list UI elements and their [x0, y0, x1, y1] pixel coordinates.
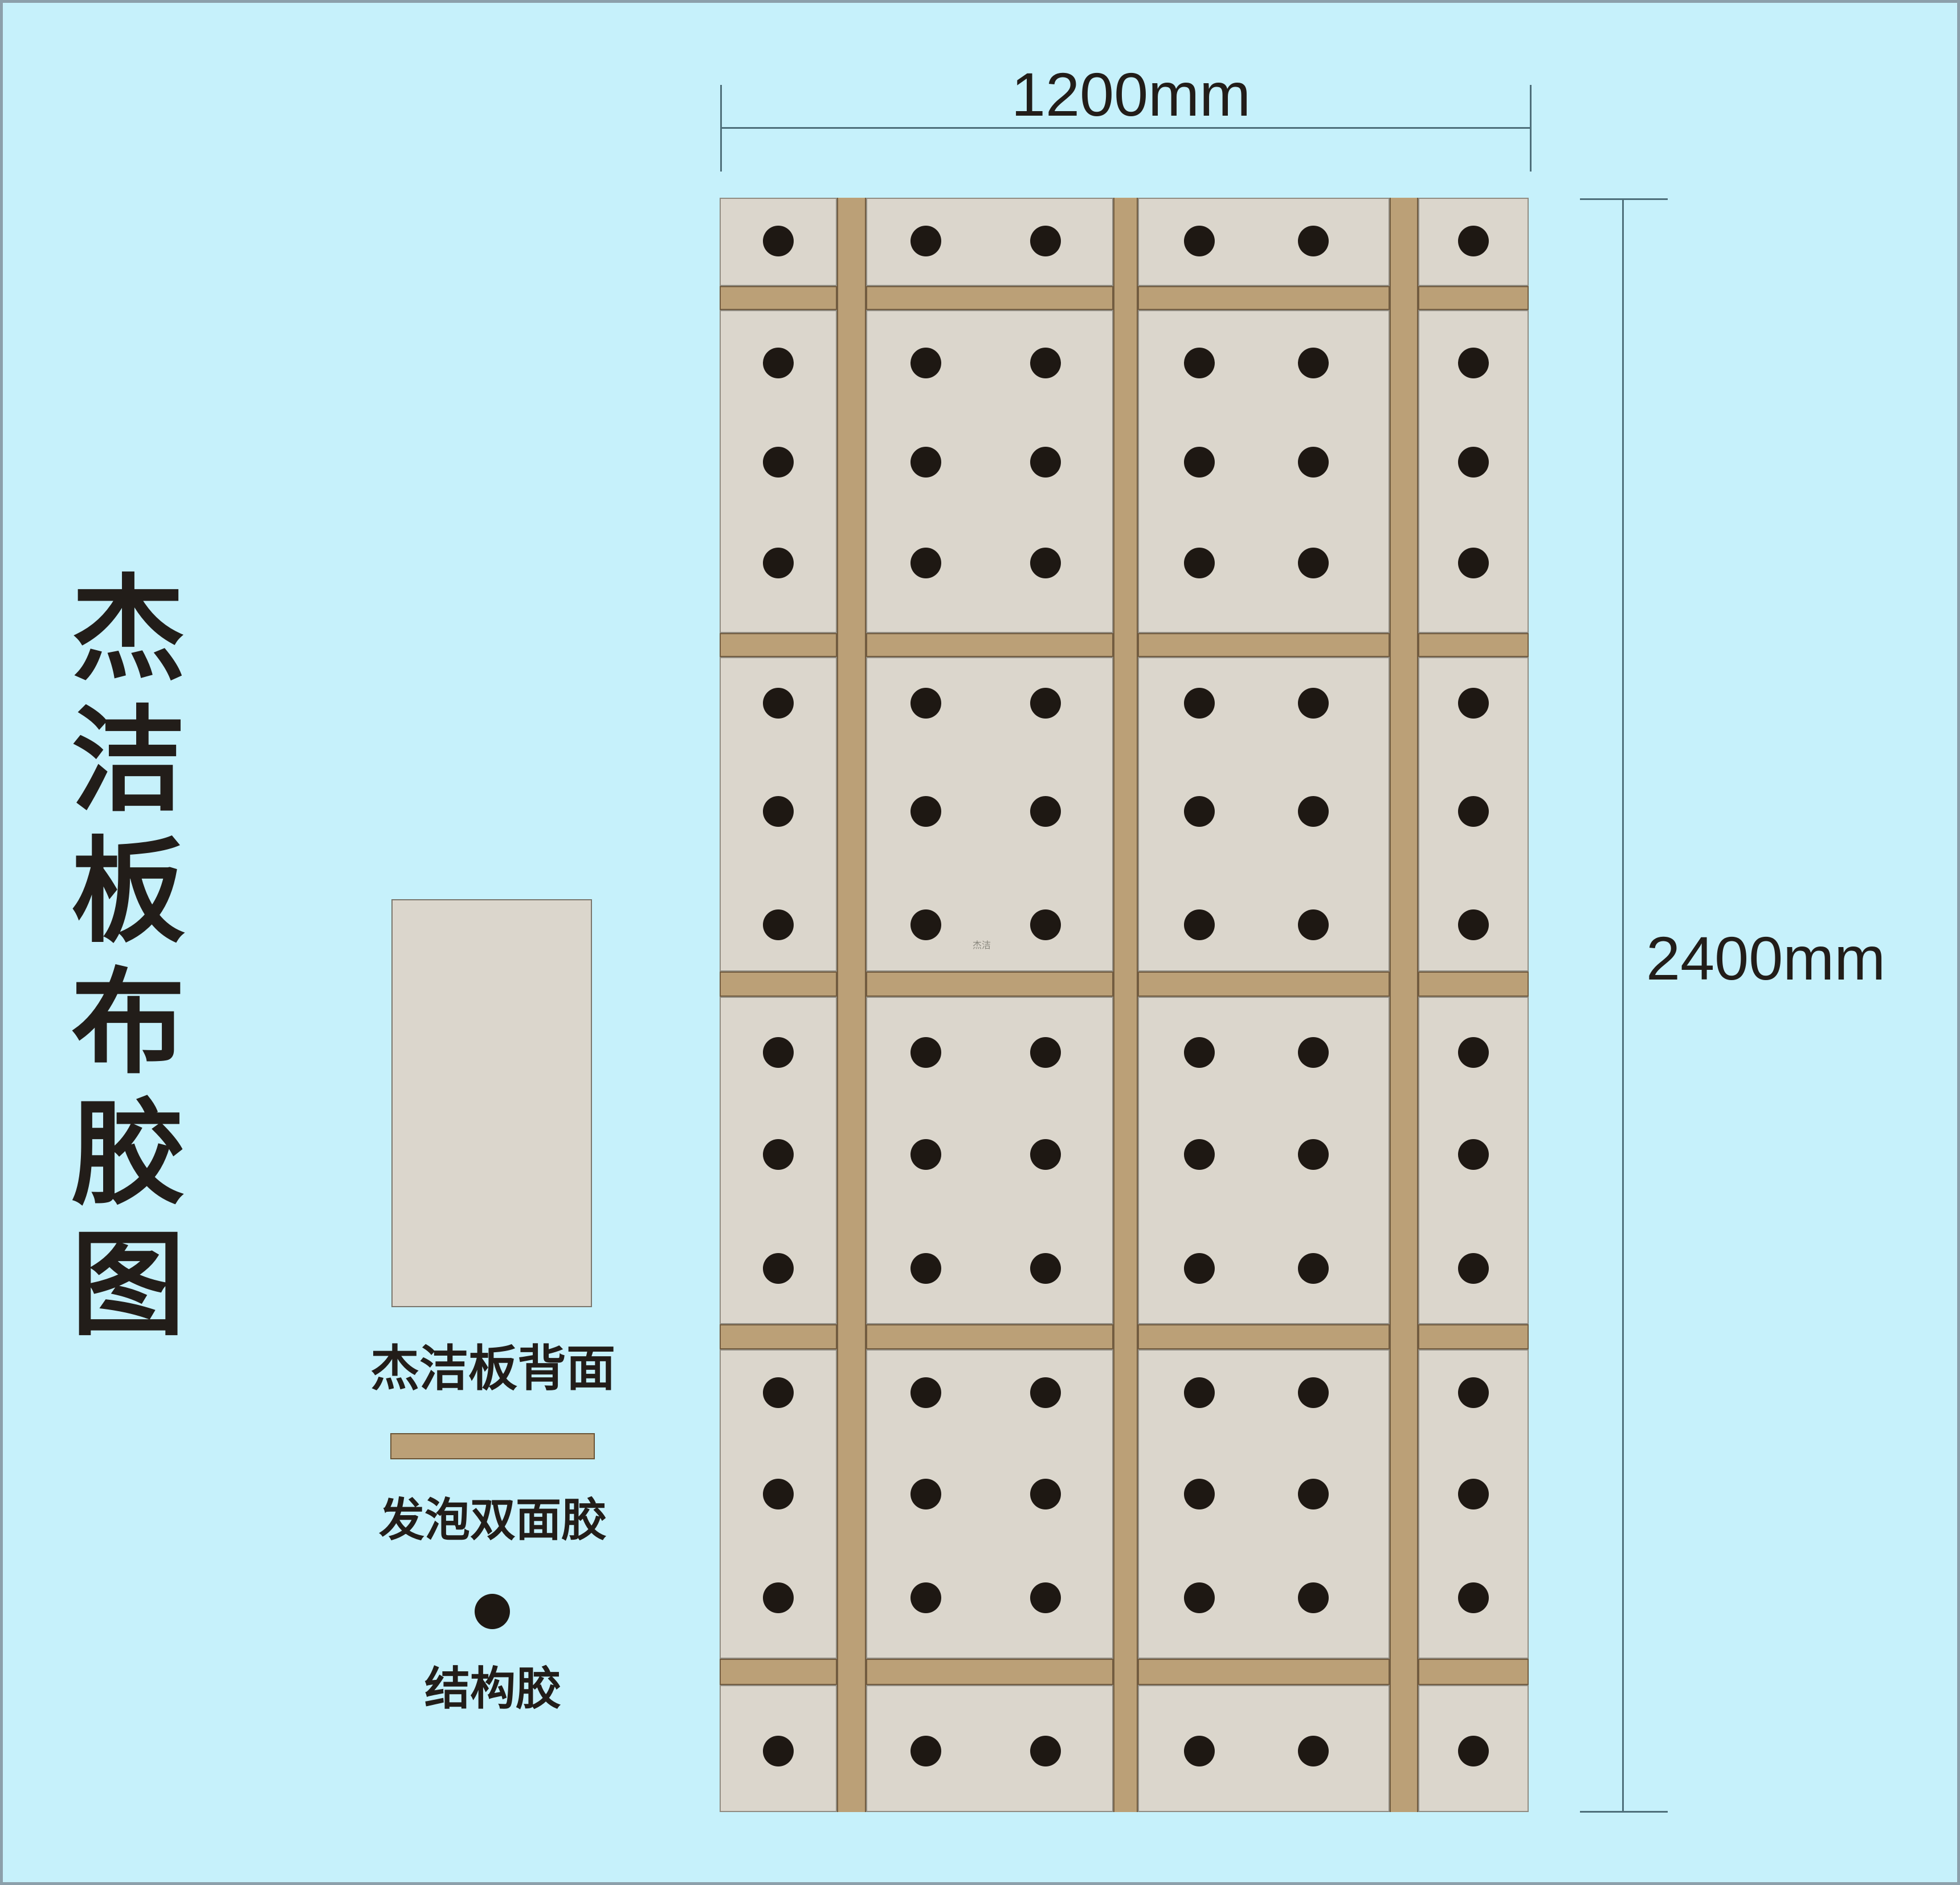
- foam-tape-strip-vertical: [837, 198, 866, 1812]
- structural-glue-dot: [910, 1582, 941, 1613]
- structural-glue-dot: [1458, 1253, 1489, 1284]
- structural-glue-dot: [1030, 796, 1061, 827]
- structural-glue-dot: [1030, 348, 1061, 378]
- structural-glue-dot: [1298, 1037, 1329, 1068]
- structural-glue-dot: [1184, 1377, 1215, 1408]
- structural-glue-dot: [1030, 548, 1061, 578]
- structural-glue-dot: [763, 348, 794, 378]
- structural-glue-dot: [1184, 909, 1215, 940]
- foam-tape-strip-horizontal: [720, 1659, 837, 1685]
- legend-tape-label: 发泡双面胶: [322, 1483, 664, 1549]
- foam-tape-strip-vertical: [1113, 198, 1138, 1812]
- panel-board: [866, 310, 1113, 633]
- dimension-tick-top-left: [720, 85, 722, 172]
- structural-glue-dot: [1298, 909, 1329, 940]
- structural-glue-dot: [1458, 1377, 1489, 1408]
- foam-tape-strip-horizontal: [1138, 633, 1390, 657]
- foam-tape-strip-horizontal: [866, 286, 1113, 310]
- structural-glue-dot: [910, 909, 941, 940]
- structural-glue-dot: [763, 909, 794, 940]
- title-character: 布: [71, 957, 185, 1088]
- foam-tape-strip-horizontal: [720, 633, 837, 657]
- panel-board: [1138, 657, 1390, 972]
- foam-tape-strip-horizontal: [1138, 1659, 1390, 1685]
- foam-tape-strip-vertical: [1390, 198, 1418, 1812]
- foam-tape-strip-horizontal: [866, 1324, 1113, 1349]
- structural-glue-dot: [763, 1479, 794, 1509]
- dimension-tick-right-top: [1580, 198, 1668, 200]
- title-character: 胶: [71, 1088, 185, 1219]
- structural-glue-dot: [1030, 1377, 1061, 1408]
- foam-tape-strip-horizontal: [720, 286, 837, 310]
- structural-glue-dot: [763, 1736, 794, 1766]
- structural-glue-dot: [1030, 1139, 1061, 1170]
- structural-glue-dot: [1458, 1139, 1489, 1170]
- panel-board: [1138, 310, 1390, 633]
- structural-glue-dot: [763, 548, 794, 578]
- structural-glue-dot: [1458, 1736, 1489, 1766]
- structural-glue-dot: [1184, 1582, 1215, 1613]
- structural-glue-dot: [1298, 1139, 1329, 1170]
- foam-tape-strip-horizontal: [1418, 1324, 1529, 1349]
- structural-glue-dot: [1298, 1582, 1329, 1613]
- structural-glue-dot: [910, 1377, 941, 1408]
- structural-glue-dot: [1298, 688, 1329, 719]
- structural-glue-dot: [910, 1253, 941, 1284]
- structural-glue-dot: [1458, 688, 1489, 719]
- structural-glue-dot: [1030, 688, 1061, 719]
- dimension-line-right: [1622, 199, 1624, 1813]
- structural-glue-dot: [1298, 348, 1329, 378]
- structural-glue-dot: [910, 796, 941, 827]
- structural-glue-dot: [1030, 447, 1061, 478]
- legend-board-label: 杰洁板背面: [322, 1328, 664, 1400]
- structural-glue-dot: [910, 548, 941, 578]
- structural-glue-dot: [910, 1037, 941, 1068]
- dimension-tick-right-bottom: [1580, 1811, 1668, 1813]
- panel-board: [866, 1349, 1113, 1659]
- foam-tape-strip-horizontal: [1418, 1659, 1529, 1685]
- foam-tape-strip-horizontal: [866, 972, 1113, 997]
- panel-board: [1138, 997, 1390, 1324]
- panel-back-face: [720, 198, 1529, 1812]
- structural-glue-dot: [1458, 1582, 1489, 1613]
- structural-glue-dot: [1030, 1582, 1061, 1613]
- structural-glue-dot: [1184, 1253, 1215, 1284]
- legend-glue-dot-swatch: [475, 1594, 510, 1629]
- structural-glue-dot: [1298, 796, 1329, 827]
- structural-glue-dot: [1298, 1253, 1329, 1284]
- structural-glue-dot: [1030, 226, 1061, 256]
- panel-board: [1138, 198, 1390, 286]
- structural-glue-dot: [763, 226, 794, 256]
- panel-board: [1138, 1349, 1390, 1659]
- title-character: 图: [71, 1219, 185, 1350]
- structural-glue-dot: [1184, 1736, 1215, 1766]
- structural-glue-dot: [1458, 447, 1489, 478]
- structural-glue-dot: [1298, 1736, 1329, 1766]
- structural-glue-dot: [763, 1377, 794, 1408]
- structural-glue-dot: [1458, 909, 1489, 940]
- panel-board: [1138, 1685, 1390, 1812]
- structural-glue-dot: [1298, 226, 1329, 256]
- structural-glue-dot: [1184, 226, 1215, 256]
- title-character: 洁: [71, 695, 185, 826]
- legend-board-swatch: [391, 899, 592, 1307]
- structural-glue-dot: [1030, 1736, 1061, 1766]
- structural-glue-dot: [1184, 796, 1215, 827]
- structural-glue-dot: [1458, 348, 1489, 378]
- foam-tape-strip-horizontal: [720, 972, 837, 997]
- structural-glue-dot: [910, 688, 941, 719]
- structural-glue-dot: [910, 1479, 941, 1509]
- structural-glue-dot: [1458, 796, 1489, 827]
- structural-glue-dot: [1298, 447, 1329, 478]
- foam-tape-strip-horizontal: [1418, 633, 1529, 657]
- foam-tape-strip-horizontal: [1138, 1324, 1390, 1349]
- structural-glue-dot: [763, 796, 794, 827]
- watermark-text: 杰洁: [973, 937, 991, 951]
- structural-glue-dot: [1030, 909, 1061, 940]
- structural-glue-dot: [763, 447, 794, 478]
- structural-glue-dot: [1184, 548, 1215, 578]
- structural-glue-dot: [1458, 226, 1489, 256]
- structural-glue-dot: [1184, 1037, 1215, 1068]
- structural-glue-dot: [1298, 1479, 1329, 1509]
- title-character: 杰: [71, 564, 185, 695]
- page-title-vertical: 杰洁板布胶图: [60, 564, 197, 1350]
- structural-glue-dot: [910, 348, 941, 378]
- structural-glue-dot: [1298, 1377, 1329, 1408]
- structural-glue-dot: [1458, 548, 1489, 578]
- structural-glue-dot: [1458, 1037, 1489, 1068]
- foam-tape-strip-horizontal: [866, 633, 1113, 657]
- foam-tape-strip-horizontal: [1418, 286, 1529, 310]
- structural-glue-dot: [763, 688, 794, 719]
- glue-layout-diagram: 杰洁板布胶图 杰洁板背面 发泡双面胶 结构胶 杰洁 1200mm 2400mm: [0, 0, 1960, 1885]
- structural-glue-dot: [910, 1736, 941, 1766]
- dimension-tick-top-right: [1530, 85, 1532, 172]
- foam-tape-strip-horizontal: [866, 1659, 1113, 1685]
- dimension-label-width: 1200mm: [960, 59, 1302, 130]
- structural-glue-dot: [1458, 1479, 1489, 1509]
- structural-glue-dot: [910, 226, 941, 256]
- title-character: 板: [71, 826, 185, 957]
- panel-board: [866, 997, 1113, 1324]
- structural-glue-dot: [1030, 1037, 1061, 1068]
- structural-glue-dot: [1184, 348, 1215, 378]
- legend-glue-label: 结构胶: [322, 1652, 664, 1718]
- structural-glue-dot: [1184, 1479, 1215, 1509]
- foam-tape-strip-horizontal: [720, 1324, 837, 1349]
- structural-glue-dot: [1184, 1139, 1215, 1170]
- structural-glue-dot: [1298, 548, 1329, 578]
- structural-glue-dot: [763, 1139, 794, 1170]
- structural-glue-dot: [910, 447, 941, 478]
- structural-glue-dot: [763, 1037, 794, 1068]
- panel-board: [866, 198, 1113, 286]
- legend-foam-tape-swatch: [390, 1433, 595, 1459]
- structural-glue-dot: [1030, 1253, 1061, 1284]
- structural-glue-dot: [1184, 447, 1215, 478]
- panel-board: [866, 1685, 1113, 1812]
- structural-glue-dot: [910, 1139, 941, 1170]
- structural-glue-dot: [763, 1582, 794, 1613]
- structural-glue-dot: [763, 1253, 794, 1284]
- foam-tape-strip-horizontal: [1138, 286, 1390, 310]
- foam-tape-strip-horizontal: [1138, 972, 1390, 997]
- structural-glue-dot: [1184, 688, 1215, 719]
- panel-board: [866, 657, 1113, 972]
- structural-glue-dot: [1030, 1479, 1061, 1509]
- dimension-label-height: 2400mm: [1646, 923, 1885, 994]
- foam-tape-strip-horizontal: [1418, 972, 1529, 997]
